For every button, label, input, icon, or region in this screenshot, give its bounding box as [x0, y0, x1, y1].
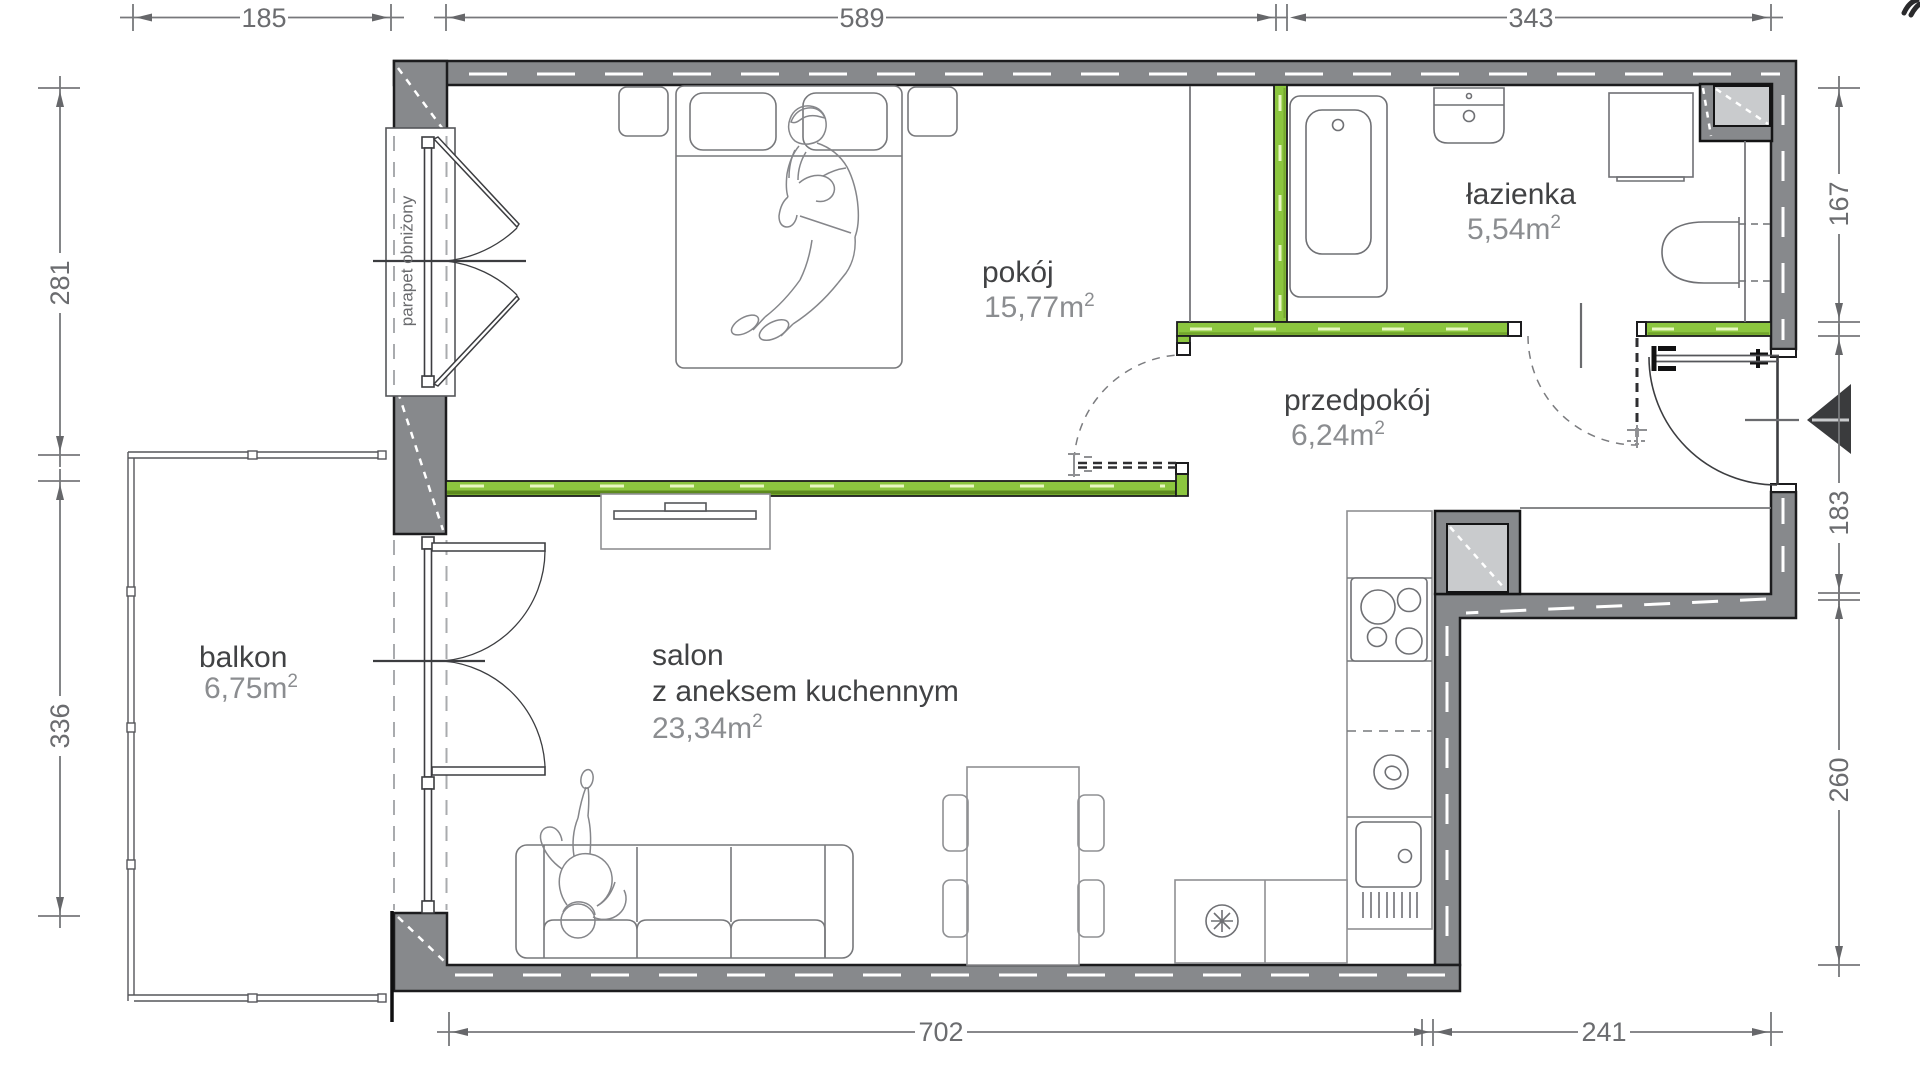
svg-text:z aneksem kuchennym: z aneksem kuchennym [652, 675, 959, 708]
svg-text:589: 589 [839, 3, 884, 33]
svg-text:23,34m2: 23,34m2 [652, 711, 763, 745]
svg-text:167: 167 [1824, 181, 1854, 226]
svg-text:balkon: balkon [199, 641, 287, 674]
svg-text:pokój: pokój [982, 256, 1054, 289]
svg-text:parapet obniżony: parapet obniżony [398, 195, 417, 326]
svg-text:281: 281 [45, 260, 75, 305]
svg-text:salon: salon [652, 639, 724, 672]
svg-text:343: 343 [1508, 3, 1553, 33]
svg-text:5,54m2: 5,54m2 [1467, 212, 1561, 246]
svg-text:6,24m2: 6,24m2 [1291, 418, 1385, 452]
svg-text:15,77m2: 15,77m2 [984, 290, 1095, 324]
svg-text:łazienka: łazienka [1466, 178, 1576, 211]
svg-text:241: 241 [1581, 1017, 1626, 1047]
svg-text:6,75m2: 6,75m2 [204, 671, 298, 705]
svg-text:336: 336 [45, 703, 75, 748]
svg-text:przedpokój: przedpokój [1284, 384, 1431, 417]
svg-text:260: 260 [1824, 757, 1854, 802]
svg-text:702: 702 [918, 1017, 963, 1047]
svg-text:183: 183 [1824, 490, 1854, 535]
svg-text:185: 185 [241, 3, 286, 33]
